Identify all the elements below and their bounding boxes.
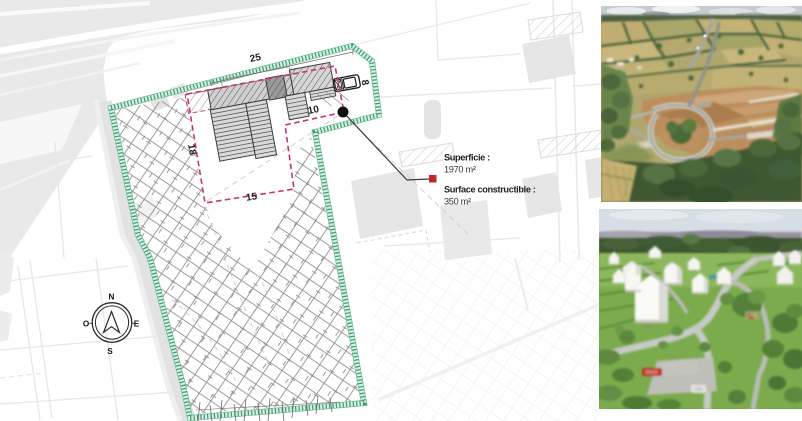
svg-text:15: 15 xyxy=(245,191,258,204)
svg-text:O: O xyxy=(83,320,90,329)
svg-text:Superficie :: Superficie : xyxy=(444,153,490,163)
svg-text:E: E xyxy=(134,320,140,329)
svg-text:S: S xyxy=(107,347,113,356)
svg-text:1970 m²: 1970 m² xyxy=(444,165,476,175)
svg-text:N: N xyxy=(109,293,115,302)
svg-text:Surface constructible :: Surface constructible : xyxy=(444,185,536,195)
svg-text:350 m²: 350 m² xyxy=(444,197,471,207)
